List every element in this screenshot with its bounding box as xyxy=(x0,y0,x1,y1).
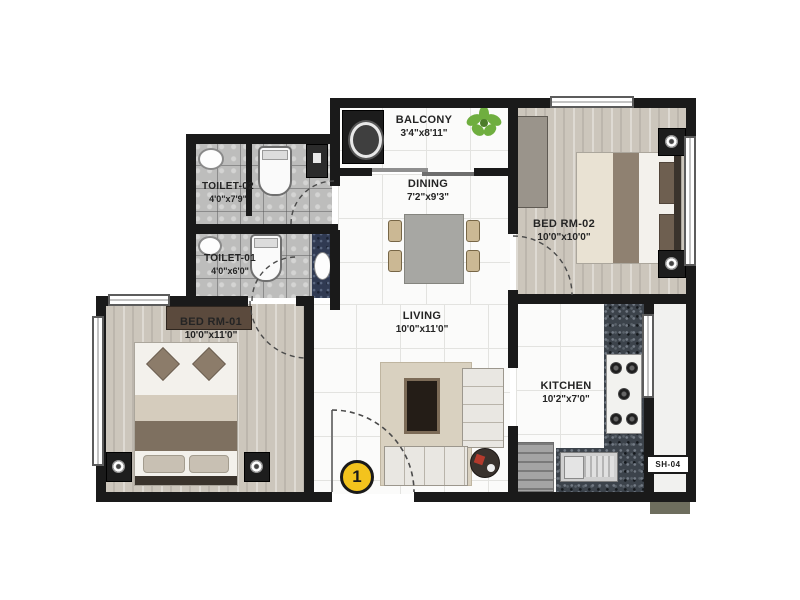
dining-chair xyxy=(466,220,480,242)
wall xyxy=(508,98,518,234)
bed-blanket-dark xyxy=(613,153,639,263)
room-label-dining: DINING 7'2"x9'3" xyxy=(368,178,488,204)
room-dims: 7'2"x9'3" xyxy=(368,191,488,204)
kitchen-appliance xyxy=(516,442,554,492)
wall xyxy=(508,426,518,502)
bed-blanket-dark xyxy=(135,421,237,451)
room-dims: 4'0"x7'9" xyxy=(188,193,268,206)
room-dims: 10'0"x10'0" xyxy=(504,231,624,244)
window xyxy=(92,316,104,466)
room-dims: 10'0"x11'0" xyxy=(146,329,276,342)
window xyxy=(550,96,634,108)
burner-icon xyxy=(626,362,638,374)
pillow-icon xyxy=(143,455,185,473)
window xyxy=(108,294,170,306)
room-dims: 3'4"x8'11" xyxy=(354,127,494,140)
dining-chair xyxy=(466,250,480,272)
wall xyxy=(474,168,508,176)
lamp-icon xyxy=(250,460,263,473)
window xyxy=(684,136,696,266)
headboard xyxy=(135,476,237,485)
sofa-section-vertical xyxy=(462,368,504,448)
pillow-icon xyxy=(146,347,180,381)
wall xyxy=(96,492,332,502)
washbasin-icon xyxy=(314,252,331,280)
room-label-balcony: BALCONY 3'4"x8'11" xyxy=(354,114,494,140)
drainboard-icon xyxy=(584,456,614,477)
decor-icon xyxy=(487,464,495,472)
wall xyxy=(508,294,696,304)
room-name: LIVING xyxy=(362,310,482,323)
wall xyxy=(186,134,196,304)
tv-unit xyxy=(404,378,440,434)
wall xyxy=(508,306,518,368)
pillow-icon xyxy=(189,455,229,473)
nightstand xyxy=(658,250,686,278)
sofa-section-horizontal xyxy=(384,446,468,486)
wall xyxy=(186,224,338,234)
sliding-door xyxy=(422,172,478,176)
dining-chair xyxy=(388,250,402,272)
wall xyxy=(304,296,314,502)
wall xyxy=(338,168,372,176)
headboard xyxy=(674,153,681,263)
room-label-toilet1: TOILET-01 4'0"x6'0" xyxy=(190,252,270,278)
dining-table xyxy=(404,214,464,284)
burner-icon xyxy=(610,413,622,425)
room-name: DINING xyxy=(368,178,488,191)
room-label-bedroom2: BED RM-02 10'0"x10'0" xyxy=(504,218,624,244)
decor-icon xyxy=(474,454,486,466)
pillow-icon xyxy=(192,347,226,381)
nightstand xyxy=(244,452,270,482)
room-label-living: LIVING 10'0"x11'0" xyxy=(362,310,482,336)
room-dims: 4'0"x6'0" xyxy=(190,265,270,278)
window xyxy=(642,314,654,398)
wc-tank xyxy=(254,238,278,248)
wardrobe-bedroom2 xyxy=(514,116,548,208)
side-table xyxy=(470,448,500,478)
room-name: BED RM-01 xyxy=(146,316,276,329)
room-dims: 10'0"x11'0" xyxy=(362,323,482,336)
room-name: BALCONY xyxy=(354,114,494,127)
washbasin-counter xyxy=(312,232,332,298)
double-bed-bedroom2 xyxy=(576,152,682,264)
sliding-door xyxy=(372,168,428,172)
sink-icon xyxy=(198,148,224,170)
lamp-icon xyxy=(665,135,678,148)
lamp-icon xyxy=(665,257,678,270)
bed-blanket xyxy=(577,153,614,263)
room-label-toilet2: TOILET-02 4'0"x7'9" xyxy=(188,180,268,206)
lamp-icon xyxy=(112,460,125,473)
dining-chair xyxy=(388,220,402,242)
entrance-number: 1 xyxy=(352,467,361,486)
room-label-kitchen: KITCHEN 10'2"x7'0" xyxy=(506,380,626,406)
shaft-label: SH-04 xyxy=(655,460,680,469)
shaft-label-box: SH-04 xyxy=(646,455,690,474)
nightstand xyxy=(106,452,132,482)
bed-blanket xyxy=(135,395,237,421)
nightstand xyxy=(658,128,686,156)
kitchen-sink xyxy=(560,452,618,482)
room-dims: 10'2"x7'0" xyxy=(506,393,626,406)
geyser-icon xyxy=(313,153,321,163)
room-name: TOILET-01 xyxy=(190,252,270,265)
wc-tank xyxy=(262,150,288,160)
burner-icon xyxy=(610,362,622,374)
room-name: BED RM-02 xyxy=(504,218,624,231)
burner-icon xyxy=(626,413,638,425)
room-name: KITCHEN xyxy=(506,380,626,393)
wall xyxy=(330,230,340,310)
double-bed-bedroom1 xyxy=(134,342,238,486)
wall xyxy=(330,134,340,186)
room-label-bedroom1: BED RM-01 10'0"x11'0" xyxy=(146,316,276,342)
entrance-marker: 1 xyxy=(340,460,374,494)
geyser-ledge xyxy=(306,144,328,178)
floor-plan: BALCONY 3'4"x8'11" DINING 7'2"x9'3" TOIL… xyxy=(0,0,800,600)
sink-bowl-icon xyxy=(564,456,584,479)
exterior-ledge xyxy=(650,502,690,514)
wall xyxy=(186,134,338,144)
room-name: TOILET-02 xyxy=(188,180,268,193)
